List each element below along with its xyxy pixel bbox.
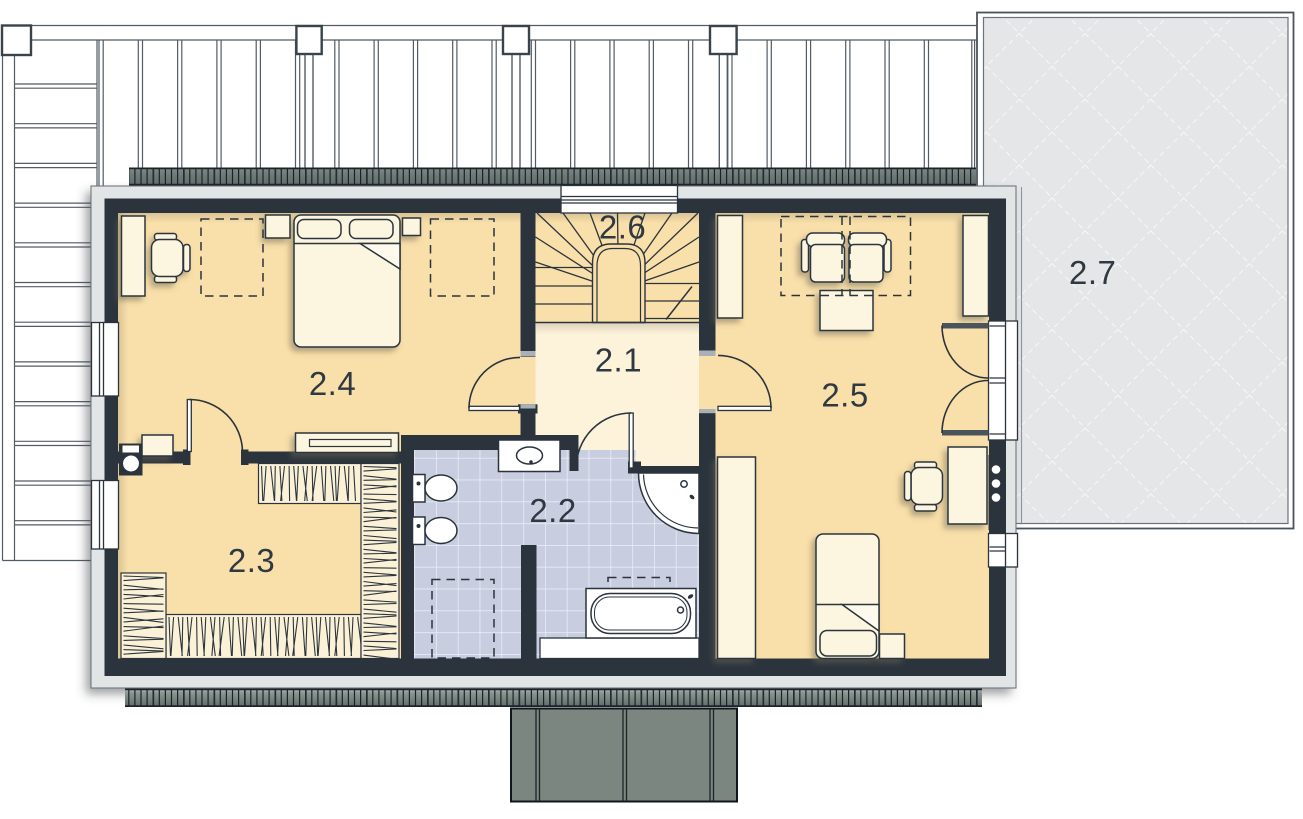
svg-text:2.1: 2.1 <box>595 342 642 379</box>
svg-text:2.3: 2.3 <box>228 542 275 579</box>
svg-text:2.4: 2.4 <box>309 365 356 402</box>
svg-text:2.2: 2.2 <box>529 492 576 529</box>
svg-text:2.7: 2.7 <box>1069 254 1116 291</box>
svg-text:2.5: 2.5 <box>821 377 868 414</box>
svg-text:2.6: 2.6 <box>599 209 646 246</box>
